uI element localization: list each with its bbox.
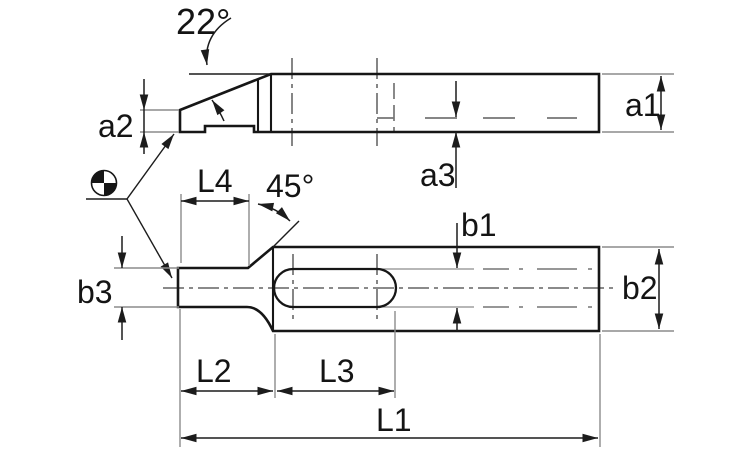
technical-drawing-canvas: 22° a2 a1 a3: [0, 0, 750, 450]
dim-a1: a1: [602, 74, 674, 132]
datum-target: [86, 134, 174, 278]
drawing-page: 22° a2 a1 a3: [0, 0, 750, 450]
label-a3: a3: [420, 157, 456, 193]
label-b3: b3: [77, 274, 113, 310]
side-view: [180, 58, 599, 146]
dim-L4: L4: [181, 163, 249, 266]
label-L2: L2: [196, 353, 232, 389]
side-view-fill: [180, 74, 599, 132]
label-angle-22: 22°: [176, 1, 230, 42]
label-a1: a1: [625, 87, 661, 123]
chamfer-angle-arc: [258, 204, 290, 221]
datum-target-quadrant-nw: [92, 171, 105, 184]
chamfer-extension-line: [273, 221, 299, 247]
label-L1: L1: [376, 402, 412, 438]
datum-target-quadrant-se: [104, 183, 117, 196]
label-L4: L4: [197, 163, 233, 199]
leader-to-bottom-view: [127, 199, 172, 278]
dim-L2: L2: [181, 334, 275, 398]
bottom-view: [163, 221, 617, 331]
dim-45deg: 45°: [258, 168, 314, 221]
dim-b2: b2: [602, 247, 674, 331]
label-b1: b1: [461, 207, 497, 243]
leader-to-side-view: [127, 134, 174, 199]
label-L3: L3: [319, 353, 355, 389]
bottom-view-fill: [178, 247, 599, 331]
label-b2: b2: [622, 270, 658, 306]
label-angle-45: 45°: [266, 168, 314, 204]
label-a2: a2: [98, 108, 134, 144]
